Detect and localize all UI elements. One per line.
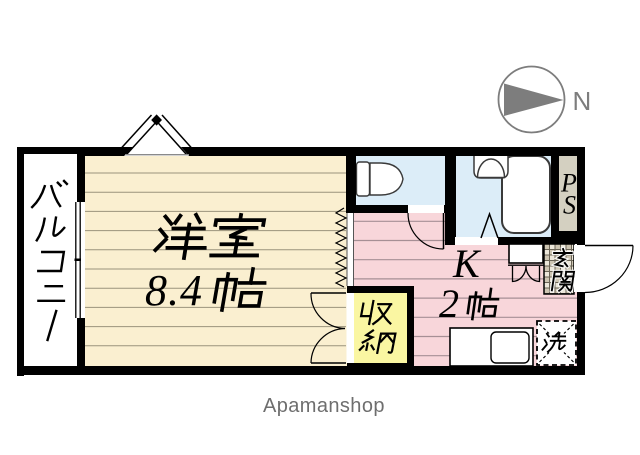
svg-text:N: N — [573, 86, 592, 116]
svg-text:8.4: 8.4 — [145, 266, 203, 315]
svg-text:Apamanshop: Apamanshop — [263, 395, 385, 417]
svg-text:2: 2 — [439, 281, 459, 326]
svg-text:K: K — [452, 241, 482, 286]
svg-text:S: S — [563, 191, 576, 220]
